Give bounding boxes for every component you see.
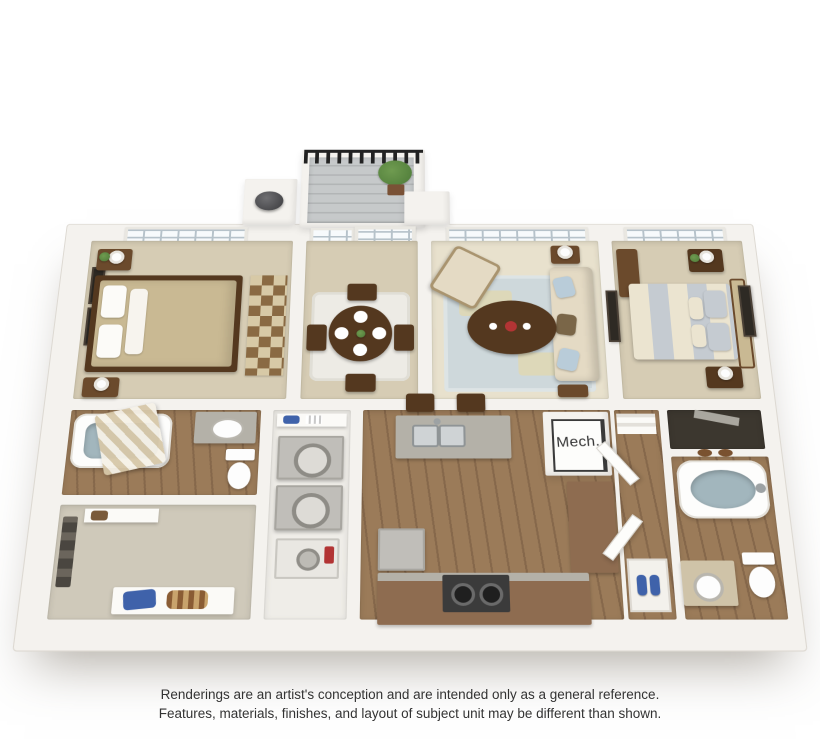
bar-stool xyxy=(457,394,486,412)
striped-ottoman xyxy=(166,590,209,609)
faucet-icon xyxy=(755,483,767,493)
wall-block xyxy=(404,191,450,224)
balcony-plant-icon xyxy=(378,160,412,185)
centerpiece-icon xyxy=(356,330,365,338)
sink-basin xyxy=(412,425,439,447)
table-lamp-icon xyxy=(557,246,573,259)
shelf-item xyxy=(306,416,323,424)
detergent-bottle xyxy=(324,546,334,563)
throw-pillow xyxy=(555,313,577,336)
linen-closet xyxy=(616,414,657,434)
end-table xyxy=(557,385,588,398)
page: { "labels": { "mech_closet": "Mech." }, … xyxy=(0,0,820,740)
blue-cushion xyxy=(123,589,156,611)
flower-decor xyxy=(505,321,517,331)
dining-chair xyxy=(394,325,414,351)
shoe-icon xyxy=(636,575,647,596)
toilet-tank xyxy=(225,449,255,460)
balcony-railing xyxy=(304,150,423,164)
refrigerator xyxy=(378,528,425,570)
pillow xyxy=(703,290,728,317)
checkered-rug xyxy=(245,275,288,375)
candle-decor xyxy=(523,323,531,330)
disclaimer-line1: Renderings are an artist's conception an… xyxy=(0,686,820,705)
pillow xyxy=(96,325,123,358)
table-lamp-icon xyxy=(699,251,715,263)
shoe-icon xyxy=(718,449,733,457)
faucet-icon xyxy=(434,418,441,424)
candle-decor xyxy=(489,323,497,330)
burner-icon xyxy=(451,583,475,606)
pillow xyxy=(100,285,127,317)
disclaimer-line2: Features, materials, finishes, and layou… xyxy=(0,705,820,724)
disclaimer: Renderings are an artist's conception an… xyxy=(0,686,820,724)
plant-pot xyxy=(387,184,404,195)
plant-icon xyxy=(690,254,701,262)
pillow xyxy=(691,325,707,348)
pillow xyxy=(706,323,731,351)
bag xyxy=(90,511,108,521)
shoe-icon xyxy=(649,575,660,596)
plate xyxy=(372,327,386,339)
dining-chair xyxy=(345,374,376,392)
shelf-item xyxy=(283,416,300,424)
floorplan-scene: Mech. xyxy=(12,150,809,657)
shoe-icon xyxy=(697,449,712,457)
table-lamp-icon xyxy=(717,367,734,380)
floorplan: Mech. xyxy=(12,150,809,657)
sink-basin xyxy=(439,425,466,447)
mech-closet-label: Mech. xyxy=(556,433,601,450)
burner-icon xyxy=(479,583,503,606)
dining-chair xyxy=(347,284,377,301)
pillow xyxy=(688,297,704,319)
dining-chair xyxy=(306,325,327,351)
toilet-tank xyxy=(742,552,776,564)
bar-stool xyxy=(406,394,435,412)
